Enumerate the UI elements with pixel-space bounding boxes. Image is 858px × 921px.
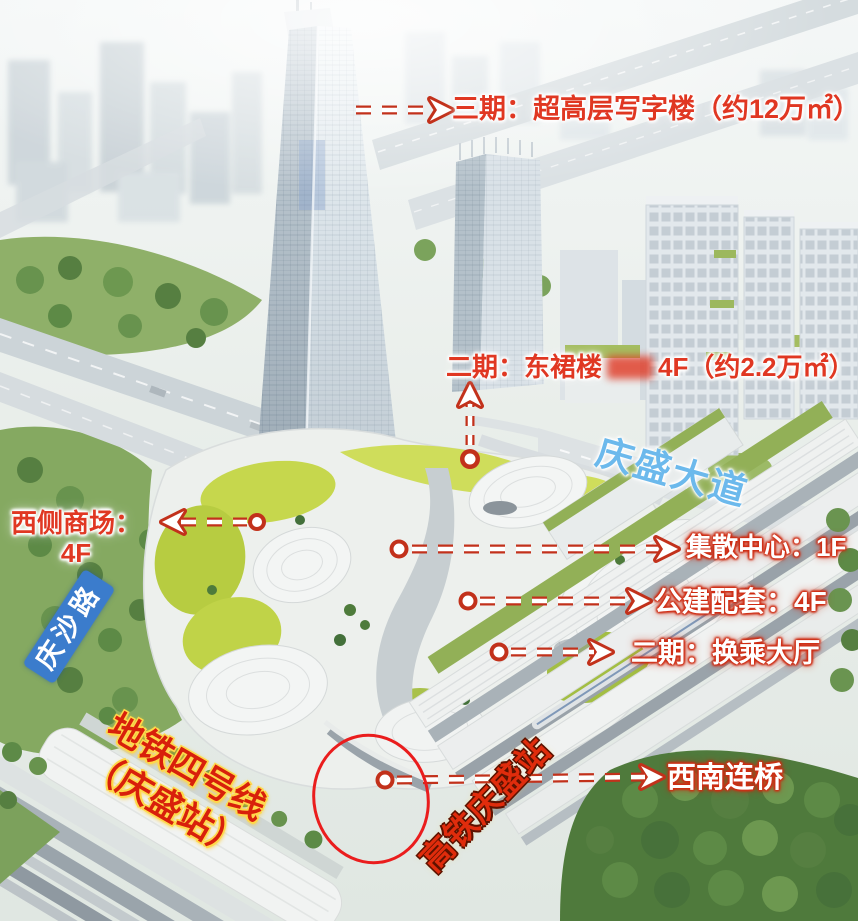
label-phase3-office-tower: 三期：超高层写字楼（约12万㎡）: [452, 94, 858, 125]
west-mall-line2: 4F: [6, 539, 146, 569]
label-phase2-transfer-hall: 二期：换乘大厅: [631, 638, 820, 669]
sun-haze: [0, 0, 858, 320]
phase2-prefix: 二期：东裙楼: [446, 352, 602, 382]
aerial-rendering: 三期：超高层写字楼（约12万㎡） 二期：东裙楼4F（约2.2万㎡） 庆盛大道 西…: [0, 0, 858, 921]
west-mall-line1: 西侧商场：: [6, 509, 146, 539]
label-public-amenities: 公建配套：4F: [654, 586, 827, 618]
label-west-mall: 西侧商场： 4F: [6, 509, 146, 569]
redacted-text-blur: [607, 356, 653, 379]
phase2-suffix: 4F（约2.2万㎡）: [658, 352, 855, 382]
label-southwest-bridge: 西南连桥: [667, 762, 783, 795]
label-distribution-center: 集散中心：1F: [686, 533, 846, 563]
label-phase2-east-podium: 二期：东裙楼4F（约2.2万㎡）: [446, 353, 855, 383]
